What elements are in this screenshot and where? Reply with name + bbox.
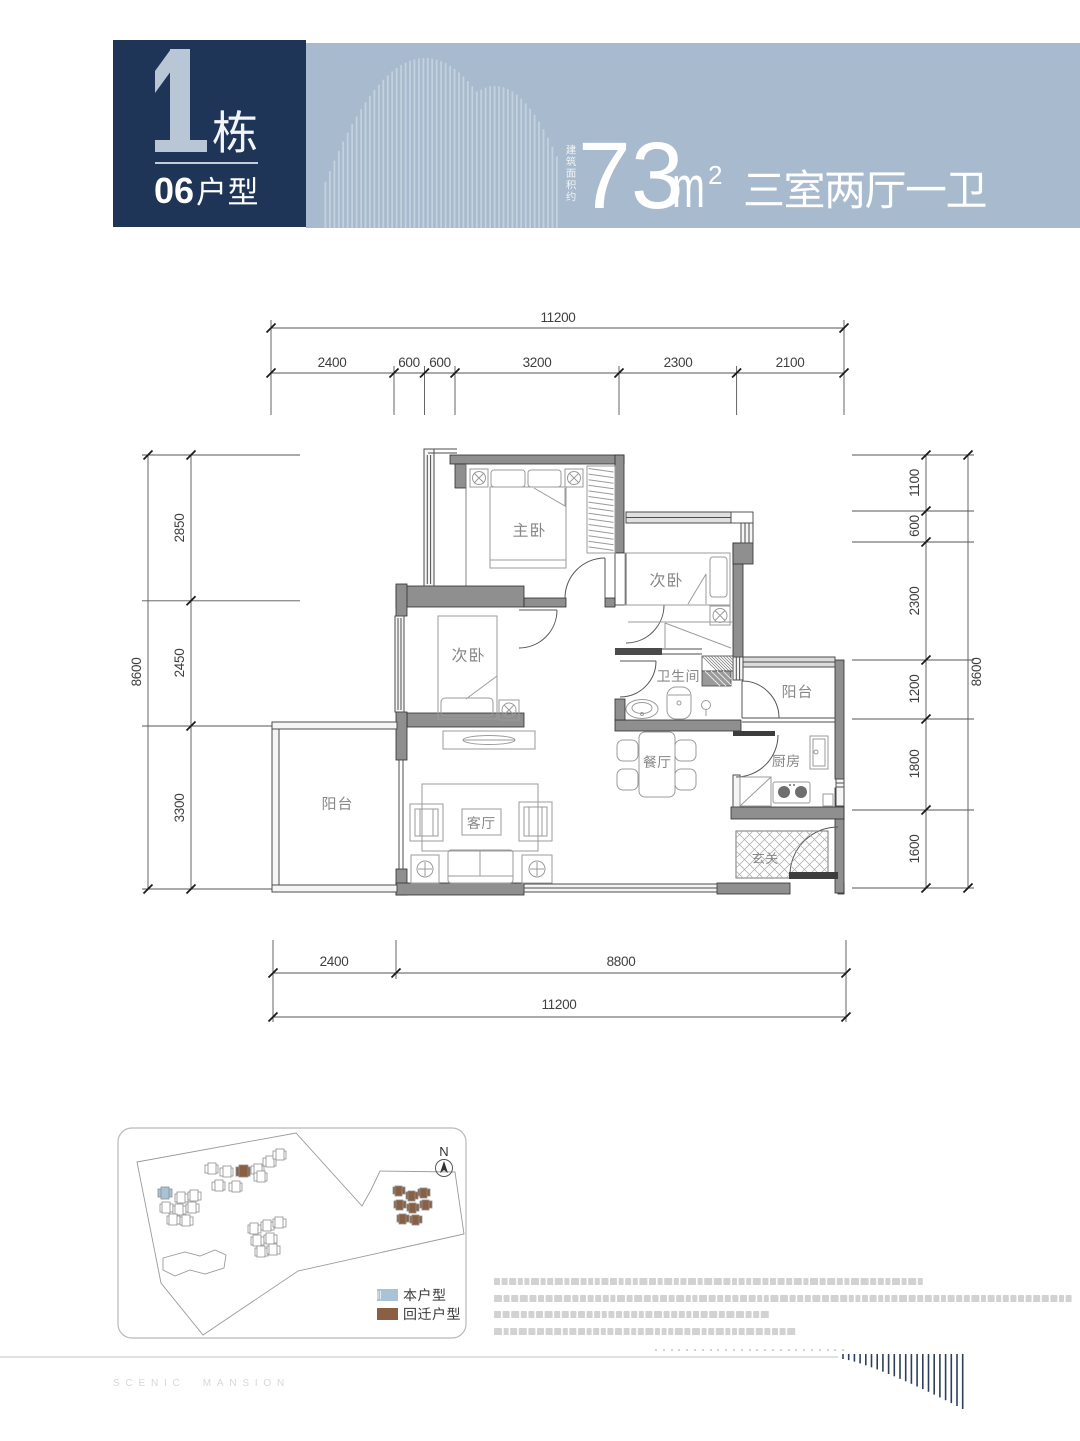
svg-text:1600: 1600 [907, 835, 922, 864]
svg-text:2400: 2400 [318, 355, 347, 370]
svg-text:11200: 11200 [540, 310, 575, 325]
svg-text:2300: 2300 [907, 587, 922, 616]
svg-text:2: 2 [708, 160, 722, 190]
svg-text:2300: 2300 [664, 355, 693, 370]
svg-text:8600: 8600 [129, 658, 144, 687]
svg-text:1200: 1200 [907, 675, 922, 704]
svg-text:m: m [672, 154, 705, 220]
svg-text:600: 600 [907, 515, 922, 537]
svg-text:2100: 2100 [776, 355, 805, 370]
svg-text:73: 73 [578, 123, 684, 229]
svg-text:1100: 1100 [907, 469, 922, 497]
svg-text:3200: 3200 [523, 355, 552, 370]
svg-text:2400: 2400 [320, 954, 349, 969]
svg-text:1800: 1800 [907, 750, 922, 779]
svg-text:2850: 2850 [172, 514, 187, 543]
svg-text:06: 06 [154, 170, 194, 211]
svg-text:8600: 8600 [969, 658, 984, 687]
svg-text:2450: 2450 [172, 649, 187, 678]
svg-text:600: 600 [429, 355, 451, 370]
svg-text:SCENIC MANSION: SCENIC MANSION [113, 1378, 290, 1389]
svg-text:N: N [439, 1144, 448, 1159]
svg-text:11200: 11200 [541, 997, 576, 1012]
svg-text:8800: 8800 [607, 954, 636, 969]
svg-text:3300: 3300 [172, 794, 187, 823]
svg-text:600: 600 [398, 355, 420, 370]
